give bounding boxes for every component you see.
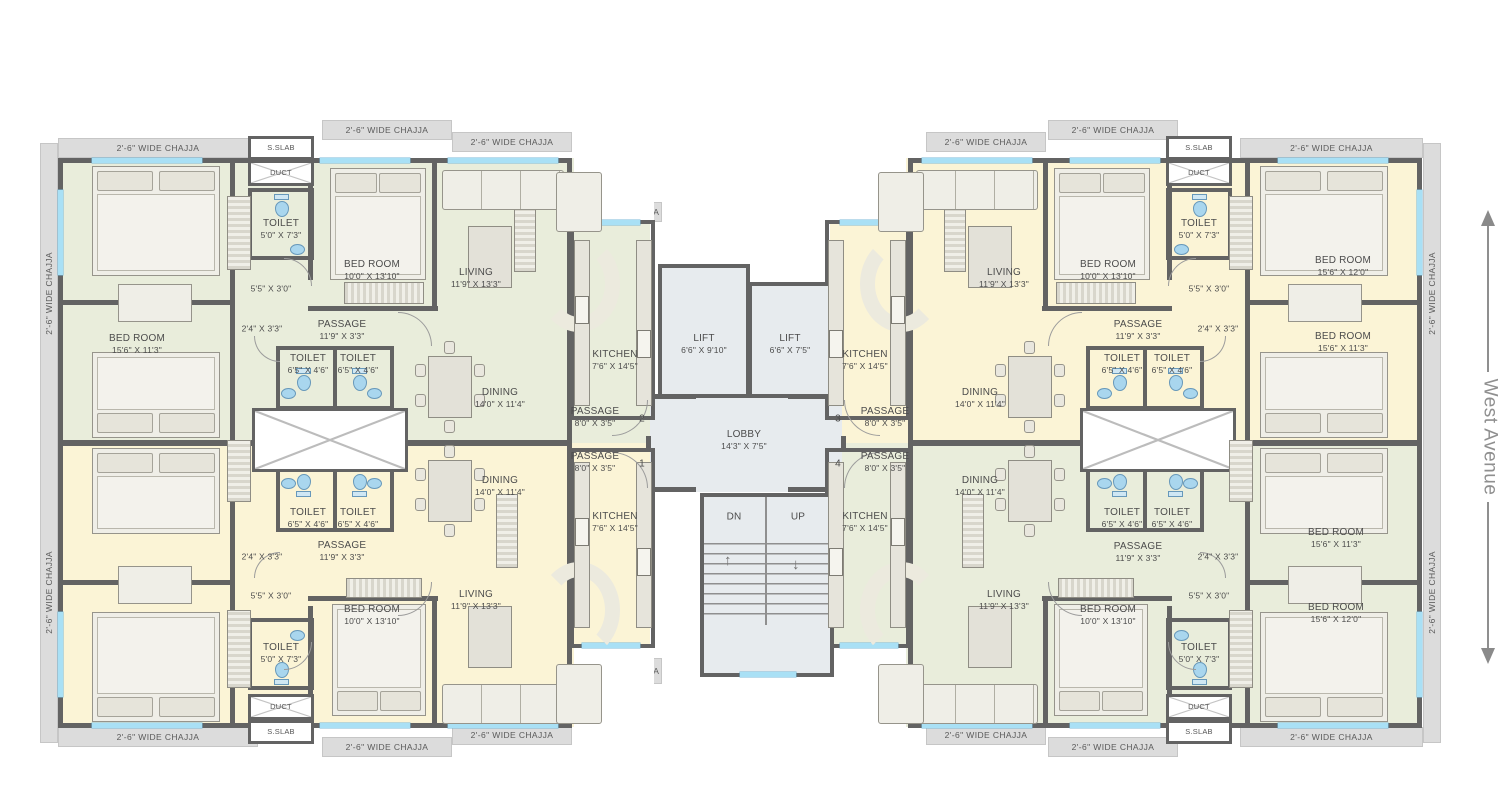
passage-label: PASSAGE8'0" X 3'5" bbox=[571, 405, 619, 429]
lift-label: LIFT6'6" X 7'5" bbox=[770, 332, 811, 356]
window bbox=[1278, 158, 1388, 163]
wash-basin bbox=[1097, 478, 1112, 489]
duct-label: DUCT bbox=[1188, 168, 1210, 178]
window bbox=[448, 158, 558, 163]
window bbox=[1070, 158, 1160, 163]
chajja-band: 2'-6" WIDE CHAJJA bbox=[452, 132, 572, 152]
sslab-label: S.SLAB bbox=[1185, 143, 1212, 153]
sofa bbox=[916, 170, 1038, 210]
toilet-label: TOILET6'5" X 4'6" bbox=[1152, 352, 1193, 376]
window bbox=[92, 158, 202, 163]
lobby-label: LOBBY14'3" X 7'5" bbox=[721, 428, 767, 452]
window bbox=[740, 672, 796, 677]
bedroom-label: BED ROOM10'0" X 13'10" bbox=[1080, 258, 1136, 282]
niche-dim-label: 5'5" X 3'0" bbox=[251, 590, 292, 601]
passage-label: PASSAGE11'9" X 3'3" bbox=[318, 539, 366, 563]
floor-plan: 2'-6" WIDE CHAJJA 2'-6" WIDE CHAJJA 2'-6… bbox=[0, 0, 1508, 806]
passage-label: PASSAGE8'0" X 3'5" bbox=[861, 405, 909, 429]
toilet-wc bbox=[1168, 474, 1183, 497]
bedroom-label: BED ROOM10'0" X 13'10" bbox=[344, 603, 400, 627]
kitchen-stove bbox=[637, 330, 651, 358]
wash-basin bbox=[1174, 244, 1189, 255]
wash-basin bbox=[367, 388, 382, 399]
wall bbox=[841, 436, 846, 452]
kitchen-counter bbox=[828, 240, 844, 406]
door-dim-label: 2'4" X 3'3" bbox=[1198, 323, 1239, 334]
chajja-band-left: 2'-6" WIDE CHAJJA 2'-6" WIDE CHAJJA bbox=[40, 143, 58, 743]
kitchen-stove bbox=[829, 330, 843, 358]
chajja-band: 2'-6" WIDE CHAJJA bbox=[452, 725, 572, 745]
wash-basin bbox=[1174, 630, 1189, 641]
sofa-corner bbox=[878, 664, 924, 724]
coffee-table bbox=[968, 606, 1012, 668]
window bbox=[92, 723, 202, 728]
bedroom-label: BED ROOM15'6" X 11'3" bbox=[109, 332, 165, 356]
wash-basin bbox=[1097, 388, 1112, 399]
living-label: LIVING11'9" X 13'3" bbox=[979, 588, 1029, 612]
bedroom-label: BED ROOM15'6" X 11'3" bbox=[1315, 330, 1371, 354]
window bbox=[922, 158, 1032, 163]
unit-number-3: 3 bbox=[835, 413, 841, 426]
niche-dim-label: 5'5" X 3'0" bbox=[1189, 590, 1230, 601]
wall bbox=[333, 346, 337, 410]
sslab-label: S.SLAB bbox=[267, 143, 294, 153]
street-arrow-down bbox=[1481, 648, 1495, 664]
toilet-label: TOILET6'5" X 4'6" bbox=[288, 506, 329, 530]
wall bbox=[1043, 158, 1048, 310]
wardrobe bbox=[227, 440, 251, 502]
chajja-label: 2'-6" WIDE CHAJJA bbox=[44, 551, 54, 634]
lift-label: LIFT6'6" X 9'10" bbox=[681, 332, 727, 356]
wash-basin bbox=[281, 478, 296, 489]
niche-dim-label: 5'5" X 3'0" bbox=[251, 283, 292, 294]
chajja-band: 2'-6" WIDE CHAJJA bbox=[58, 138, 258, 158]
street-arrow-line bbox=[1487, 226, 1489, 372]
toilet-label: TOILET6'5" X 4'6" bbox=[288, 352, 329, 376]
wash-basin bbox=[281, 388, 296, 399]
wardrobe bbox=[1056, 282, 1136, 304]
wall bbox=[1143, 468, 1147, 532]
duct-shaft bbox=[1080, 408, 1236, 472]
living-label: LIVING11'9" X 13'3" bbox=[979, 266, 1029, 290]
wash-basin bbox=[290, 630, 305, 641]
wall bbox=[650, 487, 696, 492]
stair-dn-label: DN bbox=[727, 511, 742, 524]
wall bbox=[432, 158, 437, 310]
wash-basin bbox=[1183, 478, 1198, 489]
door-dim-label: 2'4" X 3'3" bbox=[242, 551, 283, 562]
wall bbox=[432, 598, 437, 728]
chajja-band: 2'-6" WIDE CHAJJA bbox=[926, 725, 1046, 745]
wall bbox=[646, 436, 651, 452]
sofa-corner bbox=[556, 664, 602, 724]
kitchen-sink bbox=[891, 518, 905, 546]
bed bbox=[1260, 612, 1388, 722]
storage-cabinet bbox=[962, 494, 984, 568]
wardrobe bbox=[344, 282, 424, 304]
stair-up-label: UP bbox=[791, 511, 805, 524]
kitchen-counter bbox=[828, 462, 844, 628]
dining-label: DINING14'0" X 11'4" bbox=[955, 386, 1005, 410]
dining-label: DINING14'0" X 11'4" bbox=[955, 474, 1005, 498]
wash-basin bbox=[290, 244, 305, 255]
sofa-corner bbox=[878, 172, 924, 232]
chajja-band: 2'-6" WIDE CHAJJA bbox=[926, 132, 1046, 152]
toilet-label: TOILET6'5" X 4'6" bbox=[338, 506, 379, 530]
window bbox=[1070, 723, 1160, 728]
chajja-band: 2'-6" WIDE CHAJJA bbox=[322, 120, 452, 140]
dining-set bbox=[428, 460, 472, 522]
wall bbox=[308, 306, 438, 311]
wardrobe bbox=[227, 610, 251, 688]
wall bbox=[1043, 598, 1048, 728]
chajja-band: 2'-6" WIDE CHAJJA bbox=[1240, 727, 1423, 747]
wall bbox=[1042, 306, 1172, 311]
wall bbox=[1143, 346, 1147, 410]
window bbox=[58, 612, 63, 697]
living-label: LIVING11'9" X 13'3" bbox=[451, 588, 501, 612]
duct-label: DUCT bbox=[270, 168, 292, 178]
passage-label: PASSAGE11'9" X 3'3" bbox=[1114, 540, 1162, 564]
passage-label: PASSAGE11'9" X 3'3" bbox=[1114, 318, 1162, 342]
chajja-label: 2'-6" WIDE CHAJJA bbox=[1427, 252, 1437, 335]
passage-label: PASSAGE8'0" X 3'5" bbox=[861, 450, 909, 474]
kitchen-label: KITCHEN7'6" X 14'5" bbox=[592, 348, 638, 372]
kitchen-counter bbox=[636, 240, 652, 406]
passage-label: PASSAGE8'0" X 3'5" bbox=[571, 450, 619, 474]
window bbox=[1417, 190, 1422, 275]
toilet-label: TOILET5'0" X 7'3" bbox=[261, 641, 302, 665]
wardrobe bbox=[1229, 610, 1253, 688]
chajja-band-right: 2'-6" WIDE CHAJJA 2'-6" WIDE CHAJJA bbox=[1423, 143, 1441, 743]
stair-up-arrow: ↑ bbox=[724, 552, 732, 569]
street-arrow-up bbox=[1481, 210, 1495, 226]
sslab-label: S.SLAB bbox=[267, 727, 294, 737]
toilet-label: TOILET6'5" X 4'6" bbox=[1102, 352, 1143, 376]
bed bbox=[92, 352, 220, 438]
chajja-band: 2'-6" WIDE CHAJJA bbox=[322, 737, 452, 757]
sslab-label: S.SLAB bbox=[1185, 727, 1212, 737]
coffee-table bbox=[468, 606, 512, 668]
bed bbox=[92, 612, 220, 722]
sofa-corner bbox=[556, 172, 602, 232]
wardrobe bbox=[1229, 440, 1253, 502]
chajja-band: 2'-6" WIDE CHAJJA bbox=[58, 727, 258, 747]
window bbox=[1417, 612, 1422, 697]
toilet-label: TOILET6'5" X 4'6" bbox=[1102, 506, 1143, 530]
stair-treads bbox=[704, 543, 830, 621]
unit-number-2: 2 bbox=[639, 413, 645, 426]
bedroom-label: BED ROOM15'6" X 12'0" bbox=[1308, 601, 1364, 625]
kitchen-label: KITCHEN7'6" X 14'5" bbox=[842, 348, 888, 372]
duct-shaft bbox=[252, 408, 408, 472]
dining-set bbox=[1008, 356, 1052, 418]
dresser bbox=[118, 284, 192, 322]
window bbox=[320, 723, 410, 728]
sofa bbox=[442, 684, 564, 724]
storage-cabinet bbox=[496, 494, 518, 568]
dining-set bbox=[1008, 460, 1052, 522]
street-arrow-line bbox=[1487, 502, 1489, 648]
window bbox=[320, 158, 410, 163]
dresser bbox=[1288, 284, 1362, 322]
wardrobe bbox=[1229, 196, 1253, 270]
window bbox=[1278, 723, 1388, 728]
kitchen-sink bbox=[575, 296, 589, 324]
bed bbox=[92, 166, 220, 276]
dining-label: DINING14'0" X 11'4" bbox=[475, 386, 525, 410]
kitchen-stove bbox=[637, 548, 651, 576]
duct-label: DUCT bbox=[1188, 702, 1210, 712]
toilet-label: TOILET5'0" X 7'3" bbox=[1179, 217, 1220, 241]
dining-set bbox=[428, 356, 472, 418]
wash-basin bbox=[367, 478, 382, 489]
toilet-label: TOILET5'0" X 7'3" bbox=[1179, 641, 1220, 665]
chajja-band: 2'-6" WIDE CHAJJA bbox=[1048, 120, 1178, 140]
chajja-label: 2'-6" WIDE CHAJJA bbox=[1427, 551, 1437, 634]
unit-number-1: 1 bbox=[639, 458, 645, 471]
niche-dim-label: 5'5" X 3'0" bbox=[1189, 283, 1230, 294]
bed bbox=[92, 448, 220, 534]
stair-down-arrow: ↓ bbox=[792, 556, 800, 573]
chajja-band: 2'-6" WIDE CHAJJA bbox=[1240, 138, 1423, 158]
dining-label: DINING14'0" X 11'4" bbox=[475, 474, 525, 498]
wall bbox=[333, 468, 337, 532]
wardrobe bbox=[227, 196, 251, 270]
duct-label: DUCT bbox=[270, 702, 292, 712]
toilet-wc bbox=[1112, 474, 1127, 497]
chajja-band: 2'-6" WIDE CHAJJA bbox=[1048, 737, 1178, 757]
wash-basin bbox=[1183, 388, 1198, 399]
bedroom-label: BED ROOM15'6" X 11'3" bbox=[1308, 526, 1364, 550]
bed bbox=[1260, 448, 1388, 534]
dresser bbox=[118, 566, 192, 604]
kitchen-stove bbox=[829, 548, 843, 576]
toilet-wc bbox=[1192, 194, 1207, 217]
chajja-label: 2'-6" WIDE CHAJJA bbox=[44, 252, 54, 335]
door-dim-label: 2'4" X 3'3" bbox=[242, 323, 283, 334]
bedroom-label: BED ROOM15'6" X 12'0" bbox=[1315, 254, 1371, 278]
toilet-wc bbox=[296, 474, 311, 497]
window bbox=[58, 190, 63, 275]
toilet-label: TOILET6'5" X 4'6" bbox=[1152, 506, 1193, 530]
passage-label: PASSAGE11'9" X 3'3" bbox=[318, 318, 366, 342]
street-name-label: West Avenue bbox=[1477, 379, 1502, 496]
sofa bbox=[916, 684, 1038, 724]
bed bbox=[1260, 352, 1388, 438]
living-label: LIVING11'9" X 13'3" bbox=[451, 266, 501, 290]
toilet-label: TOILET5'0" X 7'3" bbox=[261, 217, 302, 241]
kitchen-sink bbox=[575, 518, 589, 546]
unit-number-4: 4 bbox=[835, 458, 841, 471]
sofa bbox=[442, 170, 564, 210]
toilet-wc bbox=[274, 194, 289, 217]
door-dim-label: 2'4" X 3'3" bbox=[1198, 551, 1239, 562]
toilet-wc bbox=[352, 474, 367, 497]
kitchen-label: KITCHEN7'6" X 14'5" bbox=[842, 510, 888, 534]
bedroom-label: BED ROOM10'0" X 13'10" bbox=[344, 258, 400, 282]
kitchen-sink bbox=[891, 296, 905, 324]
kitchen-label: KITCHEN7'6" X 14'5" bbox=[592, 510, 638, 534]
bedroom-label: BED ROOM10'0" X 13'10" bbox=[1080, 603, 1136, 627]
toilet-label: TOILET6'5" X 4'6" bbox=[338, 352, 379, 376]
dresser bbox=[1288, 566, 1362, 604]
